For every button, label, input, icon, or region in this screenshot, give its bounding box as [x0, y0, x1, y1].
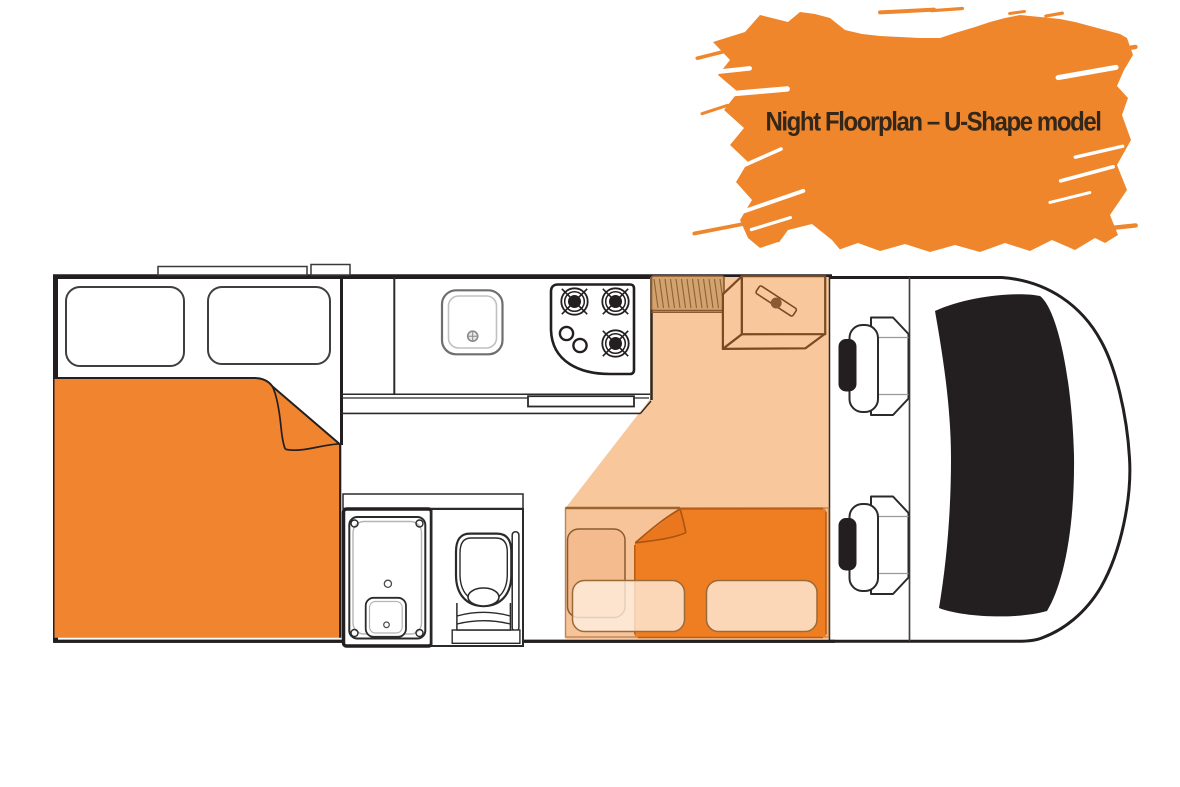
- svg-text:Night Floorplan – U-Shape mode: Night Floorplan – U-Shape model: [765, 107, 1100, 137]
